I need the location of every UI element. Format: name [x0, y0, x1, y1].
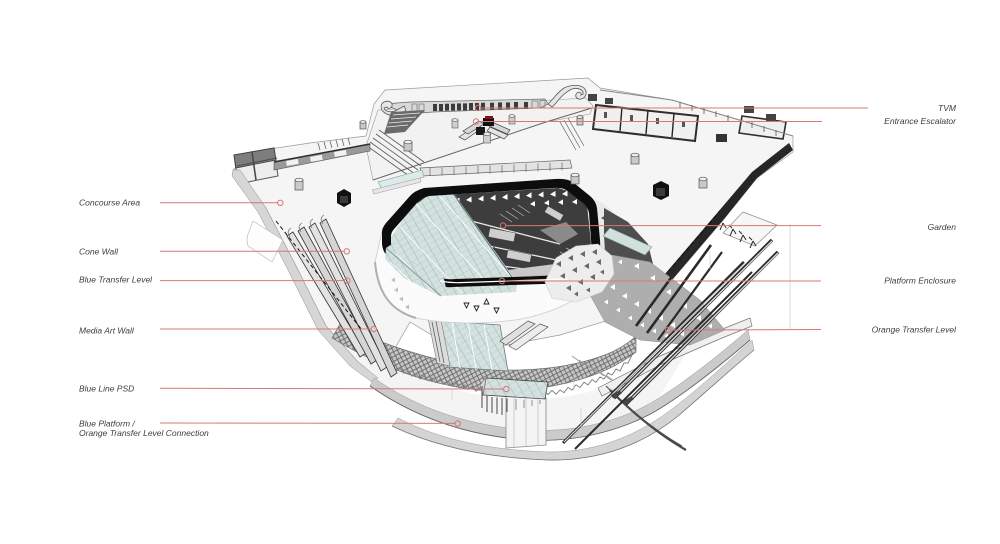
- svg-text:Blue Line PSD: Blue Line PSD: [79, 384, 134, 394]
- svg-text:Blue Platform /: Blue Platform /: [79, 419, 136, 429]
- svg-text:Entrance Escalator: Entrance Escalator: [884, 116, 957, 126]
- svg-text:Concourse Area: Concourse Area: [79, 198, 140, 208]
- svg-text:Media Art Wall: Media Art Wall: [79, 326, 135, 336]
- svg-text:Blue Transfer Level: Blue Transfer Level: [79, 275, 153, 285]
- svg-text:TVM: TVM: [938, 103, 957, 113]
- svg-text:Cone Wall: Cone Wall: [79, 247, 119, 257]
- svg-text:Orange Transfer Level: Orange Transfer Level: [872, 324, 958, 334]
- svg-text:Platform Enclosure: Platform Enclosure: [884, 276, 956, 286]
- svg-text:Orange Transfer Level Connecti: Orange Transfer Level Connection: [79, 428, 209, 438]
- svg-text:Garden: Garden: [928, 222, 957, 232]
